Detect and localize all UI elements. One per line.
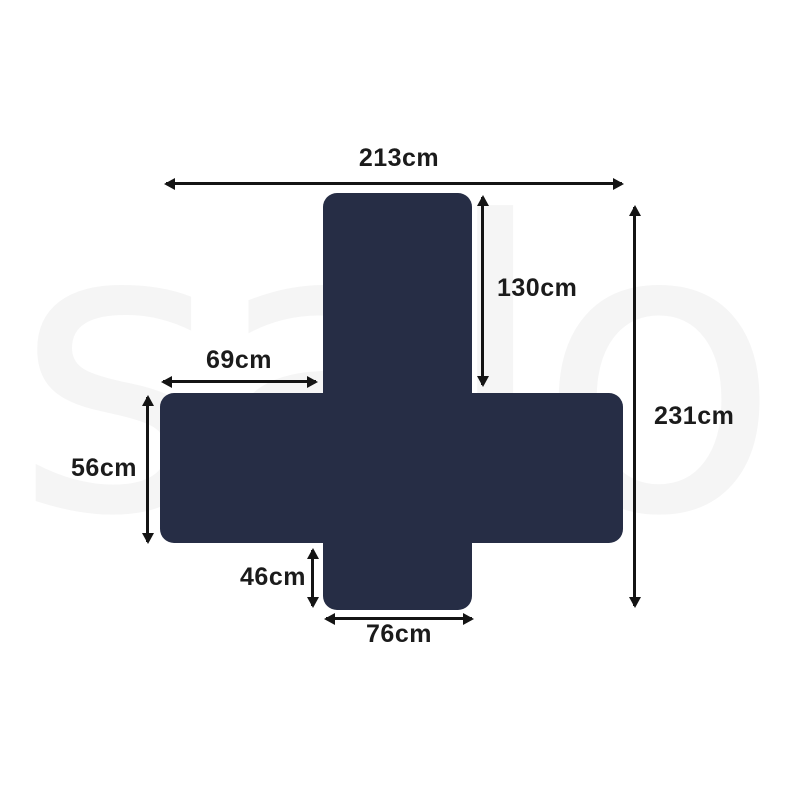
label-back-panel-height: 130cm [497, 274, 577, 303]
label-top-width: 213cm [339, 144, 459, 173]
label-overall-length: 231cm [654, 402, 734, 431]
dimension-diagram: salo 213cm 130cm 69cm 231cm 56cm 46cm 76… [0, 0, 800, 800]
arrow-overall-length [633, 207, 636, 606]
label-side-panel-height: 56cm [49, 454, 159, 483]
arrow-back-panel-height [481, 197, 484, 385]
label-front-flap-height: 46cm [218, 563, 328, 592]
label-left-arm-width: 69cm [189, 346, 289, 375]
label-front-flap-width: 76cm [344, 620, 454, 649]
arrow-top-width [166, 182, 622, 185]
arrow-left-arm-width [163, 380, 316, 383]
cover-horizontal-panel [160, 393, 623, 543]
